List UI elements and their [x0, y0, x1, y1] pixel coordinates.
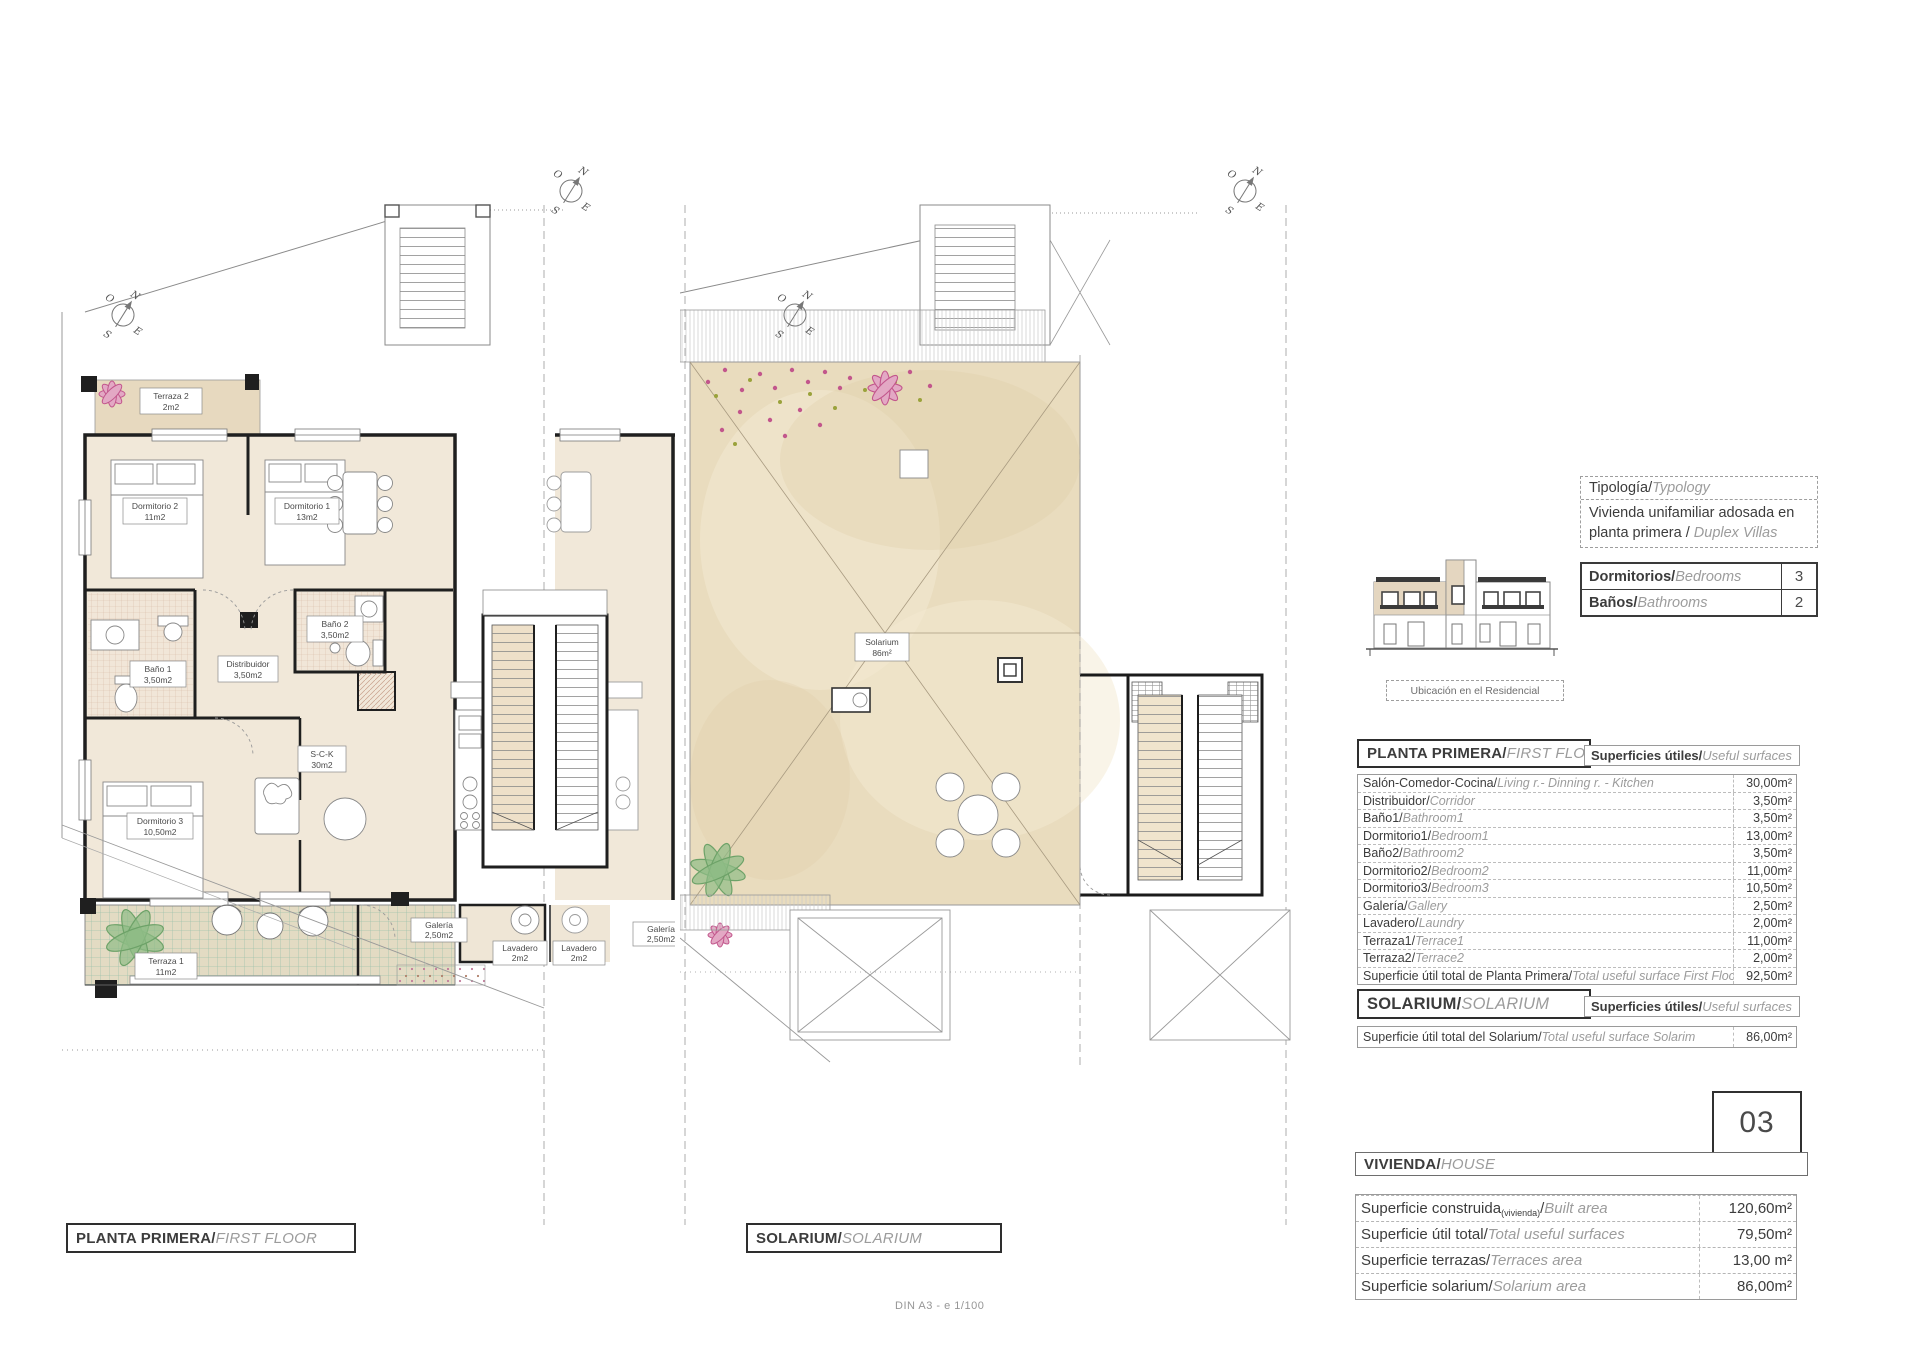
table-row: Terraza1/Terrace111,00m² — [1358, 932, 1796, 950]
flower — [99, 381, 125, 407]
first-floor-surfaces-table: Salón-Comedor-Cocina/Living r.- Dinning … — [1357, 774, 1797, 985]
svg-text:11m2: 11m2 — [145, 512, 166, 522]
bedrooms-count: 3 — [1781, 564, 1816, 589]
svg-text:3,50m2: 3,50m2 — [234, 670, 263, 680]
svg-text:2,50m2: 2,50m2 — [425, 930, 454, 940]
svg-text:2m2: 2m2 — [571, 953, 588, 963]
table-row: Lavadero/Laundry2,00m² — [1358, 914, 1796, 932]
svg-text:Terraza 1: Terraza 1 — [148, 956, 184, 966]
first-floor-header-box: PLANTA PRIMERA/FIRST FLOOR — [1357, 739, 1591, 768]
table-row: Superficie construida(vivienda)/Built ar… — [1356, 1195, 1796, 1221]
bedrooms-row: Dormitorios/Bedrooms 3 — [1582, 564, 1816, 589]
table-row: Dormitorio2/Bedroom211,00m² — [1358, 862, 1796, 880]
table-row: Dormitorio1/Bedroom113,00m² — [1358, 827, 1796, 845]
table-row: Dormitorio3/Bedroom310,50m² — [1358, 879, 1796, 897]
solarium-header-box: SOLARIUM/SOLARIUM — [1357, 989, 1591, 1019]
plan1-title-en: FIRST FLOOR — [216, 1230, 317, 1247]
svg-text:3,50m2: 3,50m2 — [144, 675, 173, 685]
svg-text:2,50m2: 2,50m2 — [647, 934, 675, 944]
svg-text:Galería: Galería — [647, 924, 675, 934]
svg-text:3,50m2: 3,50m2 — [321, 630, 350, 640]
svg-text:Dormitorio 1: Dormitorio 1 — [284, 501, 331, 511]
table-row: Baño1/Bathroom13,50m² — [1358, 809, 1796, 827]
plan1-title-es: PLANTA PRIMERA/ — [76, 1230, 216, 1247]
house-header-box: VIVIENDA/HOUSE — [1355, 1152, 1808, 1176]
table-row: Superficie solarium/Solarium area 86,00m… — [1356, 1273, 1796, 1299]
typology-header: Tipología/Typology — [1581, 477, 1817, 500]
table-row: Terraza2/Terrace22,00m² — [1358, 949, 1796, 967]
table-row: Superficie útil total/Total useful surfa… — [1356, 1221, 1796, 1247]
solarium-surfaces-caption: Superficies útiles/Useful surfaces — [1584, 996, 1800, 1017]
table-total-row: Superficie útil total del Solarium/Total… — [1358, 1027, 1796, 1047]
roof-below — [790, 910, 1290, 1040]
bathrooms-row: Baños/Bathrooms 2 — [1582, 589, 1816, 615]
svg-text:Lavadero: Lavadero — [561, 943, 597, 953]
bathrooms-count: 2 — [1781, 590, 1816, 615]
svg-text:2m2: 2m2 — [163, 402, 180, 412]
first-floor-plan-drawing: N S E O — [55, 120, 675, 1230]
plan-sheet: { "sheet": { "scale_note": "DIN A3 - e 1… — [0, 0, 1920, 1357]
table-total-row: Superficie útil total de Planta Primera/… — [1358, 967, 1796, 985]
svg-text:Dormitorio 3: Dormitorio 3 — [137, 816, 184, 826]
solarium-label: Solarium 86m² — [855, 633, 909, 661]
svg-text:Solarium: Solarium — [865, 637, 899, 647]
location-caption-box: Ubicación en el Residencial — [1386, 680, 1564, 701]
first-floor-surfaces-caption: Superficies útiles/Useful surfaces — [1584, 745, 1800, 766]
table-row: Galería/Gallery2,50m² — [1358, 897, 1796, 915]
svg-text:Baño 2: Baño 2 — [322, 619, 349, 629]
plan2-title-box: SOLARIUM/SOLARIUM — [746, 1223, 1002, 1253]
building-elevation-drawing — [1360, 552, 1565, 664]
plan1-title-box: PLANTA PRIMERA/FIRST FLOOR — [66, 1223, 356, 1253]
svg-text:30m2: 30m2 — [311, 760, 333, 770]
svg-text:2m2: 2m2 — [512, 953, 529, 963]
svg-text:Distribuidor: Distribuidor — [227, 659, 270, 669]
svg-text:10,50m2: 10,50m2 — [143, 827, 176, 837]
svg-text:Baño 1: Baño 1 — [145, 664, 172, 674]
svg-text:S-C-K: S-C-K — [310, 749, 333, 759]
table-row: Superficie terrazas/Terraces area 13,00 … — [1356, 1247, 1796, 1273]
svg-text:13m2: 13m2 — [296, 512, 318, 522]
scale-note: DIN A3 - e 1/100 — [895, 1300, 984, 1312]
table-row: Salón-Comedor-Cocina/Living r.- Dinning … — [1358, 775, 1796, 792]
svg-text:Lavadero: Lavadero — [502, 943, 538, 953]
room-label: Terraza 2 — [153, 391, 189, 401]
typology-box: Tipología/Typology Vivienda unifamiliar … — [1580, 476, 1818, 548]
staircase — [483, 590, 607, 867]
typology-value: Vivienda unifamiliar adosada en planta p… — [1581, 500, 1817, 547]
solarium-surfaces-table: Superficie útil total del Solarium/Total… — [1357, 1026, 1797, 1048]
counts-table: Dormitorios/Bedrooms 3 Baños/Bathrooms 2 — [1580, 562, 1818, 617]
unit-number-box: 03 — [1712, 1091, 1802, 1154]
table-row: Baño2/Bathroom23,50m² — [1358, 844, 1796, 862]
table-row: Distribuidor/Corridor3,50m² — [1358, 792, 1796, 810]
solarium-plan-drawing: Solarium 86m² — [680, 120, 1340, 1230]
svg-text:86m²: 86m² — [872, 648, 892, 658]
svg-text:Dormitorio 2: Dormitorio 2 — [132, 501, 179, 511]
svg-text:11m2: 11m2 — [156, 967, 177, 977]
svg-text:Galería: Galería — [425, 920, 453, 930]
house-totals-table: Superficie construida(vivienda)/Built ar… — [1355, 1194, 1797, 1300]
